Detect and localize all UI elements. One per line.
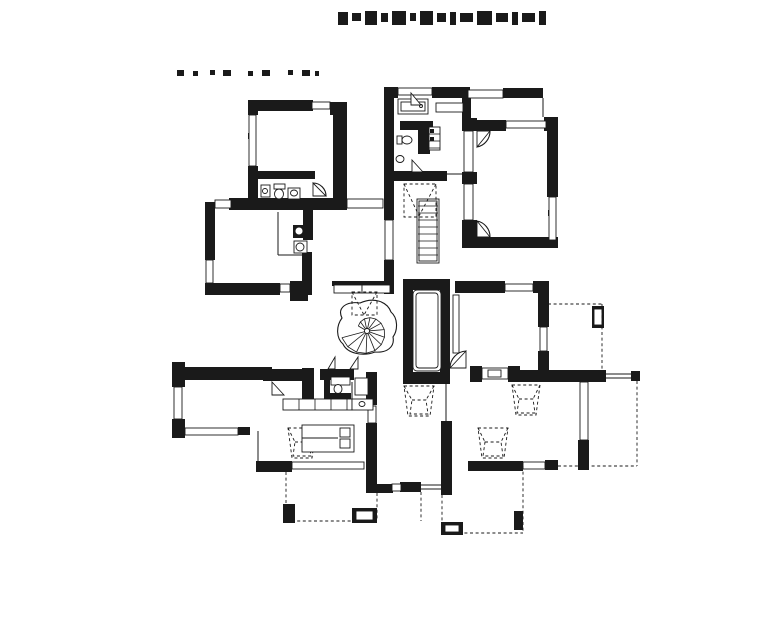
wall bbox=[366, 423, 377, 493]
spiral-staircase bbox=[367, 331, 381, 345]
roof-dash bbox=[302, 70, 310, 76]
wall bbox=[172, 419, 185, 438]
sink bbox=[263, 189, 268, 194]
window bbox=[185, 428, 238, 435]
floor-plan-page bbox=[0, 0, 780, 624]
spiral-staircase bbox=[367, 331, 375, 351]
stair-above-dashed bbox=[352, 292, 377, 315]
window bbox=[398, 88, 432, 95]
armchair-arm bbox=[404, 386, 412, 400]
fireplace-core-inner bbox=[488, 370, 501, 377]
wall bbox=[503, 88, 543, 98]
armchair-seat bbox=[483, 442, 503, 456]
wall bbox=[538, 281, 549, 327]
window bbox=[464, 184, 473, 220]
trellis-dash bbox=[450, 12, 456, 25]
shelf-dot bbox=[430, 129, 434, 133]
window bbox=[312, 102, 330, 109]
bed-pillow bbox=[340, 428, 350, 437]
roof-dash bbox=[193, 71, 198, 76]
wall bbox=[578, 440, 589, 470]
wall bbox=[462, 237, 558, 248]
window bbox=[540, 327, 547, 351]
wall bbox=[455, 281, 505, 293]
void-wall bbox=[403, 372, 450, 384]
trellis-dash bbox=[410, 13, 416, 21]
wall bbox=[229, 198, 347, 210]
spiral-staircase bbox=[366, 331, 367, 353]
stair-blob bbox=[338, 300, 397, 354]
wall bbox=[441, 421, 452, 495]
kitchen-sink bbox=[359, 402, 365, 407]
wall bbox=[172, 362, 185, 387]
toilet-tank bbox=[397, 136, 402, 144]
trellis-dash bbox=[392, 11, 406, 25]
wall bbox=[392, 171, 447, 181]
void-wall bbox=[440, 279, 450, 384]
roof-dash bbox=[288, 70, 293, 75]
wall bbox=[250, 100, 313, 111]
roof-dash bbox=[177, 70, 184, 76]
wall-spine bbox=[384, 87, 394, 220]
bed-pillow bbox=[340, 439, 350, 448]
trellis-dash bbox=[522, 13, 535, 22]
window bbox=[215, 200, 231, 208]
wall bbox=[518, 370, 606, 382]
trellis-dash bbox=[477, 11, 492, 25]
trellis-dash bbox=[381, 13, 388, 22]
void-glass-inner bbox=[416, 293, 438, 368]
wall bbox=[175, 367, 272, 380]
window bbox=[464, 131, 473, 172]
planter-inner bbox=[356, 511, 373, 520]
window bbox=[392, 484, 401, 491]
wall bbox=[418, 121, 430, 154]
trellis-dash bbox=[539, 11, 546, 25]
roof-dash bbox=[223, 70, 231, 76]
wall bbox=[290, 281, 308, 301]
armchair bbox=[512, 385, 540, 415]
armchair-seat bbox=[410, 400, 428, 414]
spiral-newel bbox=[365, 329, 370, 334]
wall bbox=[333, 107, 347, 210]
roof-dash bbox=[262, 70, 270, 76]
window bbox=[453, 295, 459, 353]
spiral-staircase bbox=[342, 318, 385, 354]
wall bbox=[366, 484, 393, 493]
roof-dash bbox=[210, 70, 215, 75]
pillar bbox=[283, 504, 295, 523]
wall bbox=[462, 120, 506, 131]
door-leaf bbox=[412, 160, 423, 172]
bracket-inner bbox=[594, 309, 602, 325]
roof-dash bbox=[248, 71, 253, 76]
window bbox=[292, 462, 364, 469]
armchair bbox=[404, 386, 434, 416]
wall bbox=[468, 461, 523, 471]
void-wall bbox=[403, 279, 413, 384]
fireplace-side bbox=[470, 366, 482, 382]
window bbox=[549, 197, 556, 240]
wall bbox=[547, 117, 558, 197]
sink bbox=[396, 156, 404, 163]
window bbox=[505, 284, 533, 291]
toilet bbox=[334, 385, 342, 394]
window bbox=[280, 284, 290, 292]
armchair bbox=[478, 428, 508, 458]
spiral-staircase bbox=[356, 331, 367, 352]
armchair-arm bbox=[501, 428, 508, 442]
wall bbox=[256, 461, 292, 472]
trellis-dash bbox=[365, 11, 377, 25]
window bbox=[174, 387, 182, 419]
wall bbox=[205, 283, 280, 295]
trellis-dash bbox=[496, 13, 508, 22]
floor-plan-drawing bbox=[0, 0, 780, 624]
window bbox=[206, 260, 213, 283]
kitchen-counter bbox=[283, 399, 352, 410]
window bbox=[580, 382, 588, 440]
appliance-drum bbox=[296, 243, 304, 251]
window bbox=[468, 90, 503, 98]
door-leaf bbox=[328, 357, 335, 369]
planter-inner bbox=[445, 525, 459, 532]
closet-fixture bbox=[355, 378, 368, 395]
wc-fixture bbox=[331, 377, 350, 385]
trellis-dash bbox=[338, 12, 348, 25]
trellis-dash bbox=[352, 13, 361, 21]
door-leaf bbox=[350, 357, 358, 369]
trellis-dash bbox=[460, 13, 473, 22]
wall bbox=[248, 100, 258, 115]
roof-dash bbox=[315, 71, 319, 76]
trellis-dash bbox=[420, 11, 433, 25]
wall bbox=[400, 482, 421, 492]
wall bbox=[205, 202, 215, 260]
door-leaf bbox=[272, 382, 284, 395]
trellis-dash bbox=[512, 12, 518, 25]
toilet bbox=[402, 136, 412, 144]
wall-tick bbox=[631, 371, 640, 381]
window bbox=[523, 462, 545, 469]
wall-tick bbox=[238, 427, 250, 435]
toilet bbox=[275, 189, 284, 199]
window bbox=[249, 115, 256, 166]
sink bbox=[291, 190, 298, 196]
armchair-seat bbox=[517, 399, 535, 413]
wall-tick bbox=[545, 460, 558, 470]
armchair-arm bbox=[478, 428, 485, 442]
wall bbox=[256, 171, 315, 179]
window bbox=[347, 199, 383, 208]
pillar bbox=[514, 511, 523, 530]
stair-dash bbox=[352, 292, 364, 315]
window bbox=[385, 220, 393, 260]
counter bbox=[436, 103, 463, 112]
shelf-dot bbox=[430, 137, 434, 141]
wall bbox=[462, 172, 477, 184]
toilet-tank bbox=[274, 184, 285, 189]
trellis-dash bbox=[437, 13, 446, 22]
window bbox=[506, 121, 546, 128]
stair-dash bbox=[364, 292, 377, 315]
sink bbox=[295, 227, 303, 235]
